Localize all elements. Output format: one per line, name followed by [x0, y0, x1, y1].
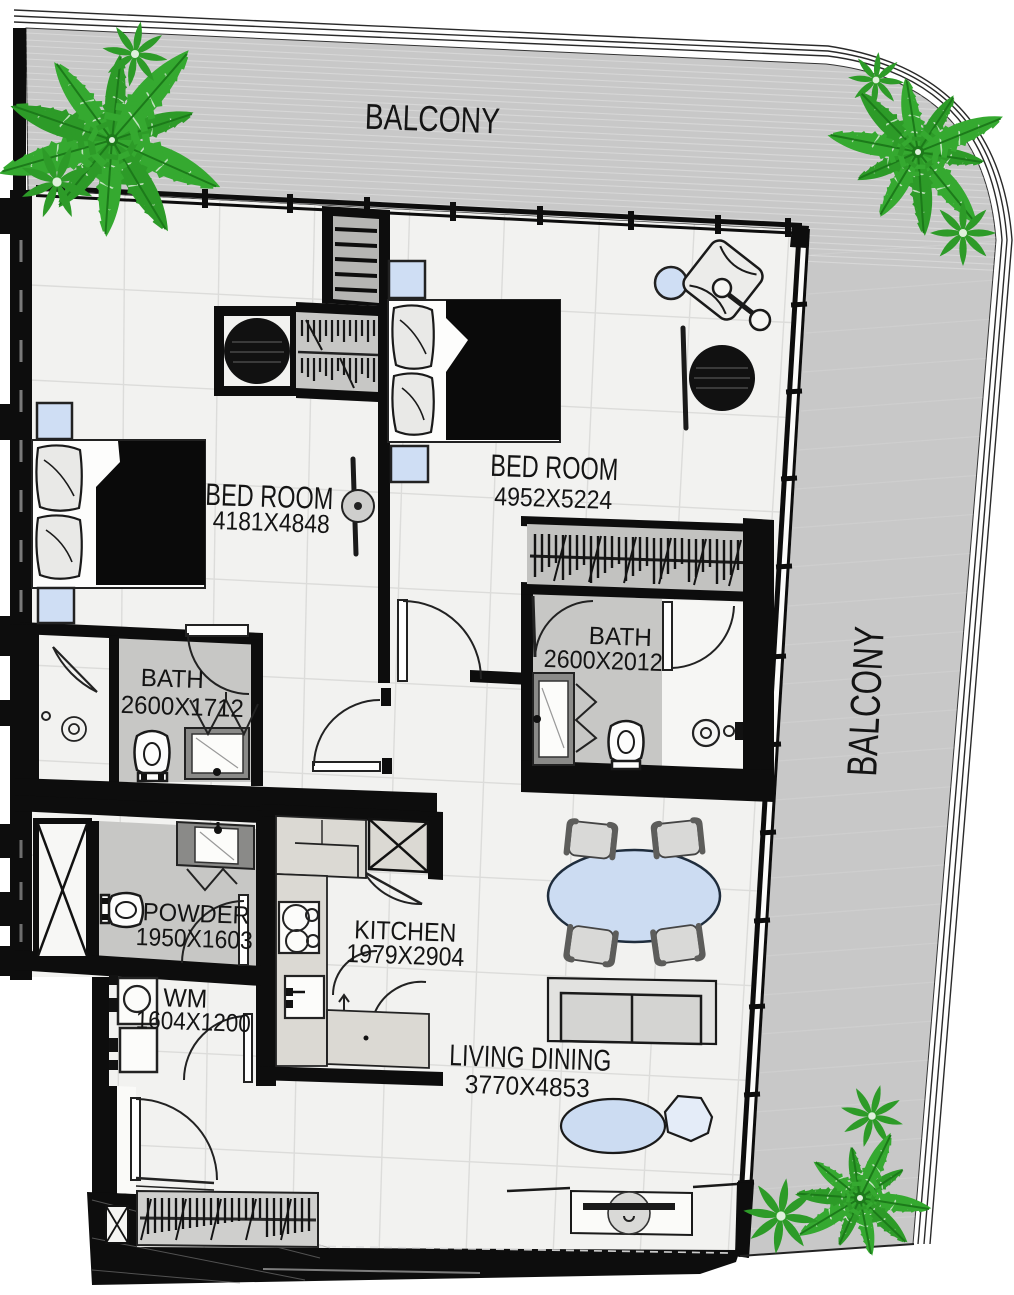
svg-text:3770X4853: 3770X4853	[464, 1069, 590, 1103]
svg-text:4952X5224: 4952X5224	[494, 481, 613, 515]
svg-text:BALCONY: BALCONY	[838, 625, 893, 777]
svg-text:BATH: BATH	[140, 664, 204, 694]
svg-text:1950X1603: 1950X1603	[135, 923, 253, 955]
svg-text:BALCONY: BALCONY	[364, 96, 500, 142]
svg-text:2600X1712: 2600X1712	[120, 691, 244, 723]
svg-text:1604X1200: 1604X1200	[135, 1006, 251, 1038]
svg-text:1979X2904: 1979X2904	[346, 938, 465, 972]
svg-text:2600X2012: 2600X2012	[543, 645, 663, 677]
svg-text:4181X4848: 4181X4848	[212, 505, 330, 539]
